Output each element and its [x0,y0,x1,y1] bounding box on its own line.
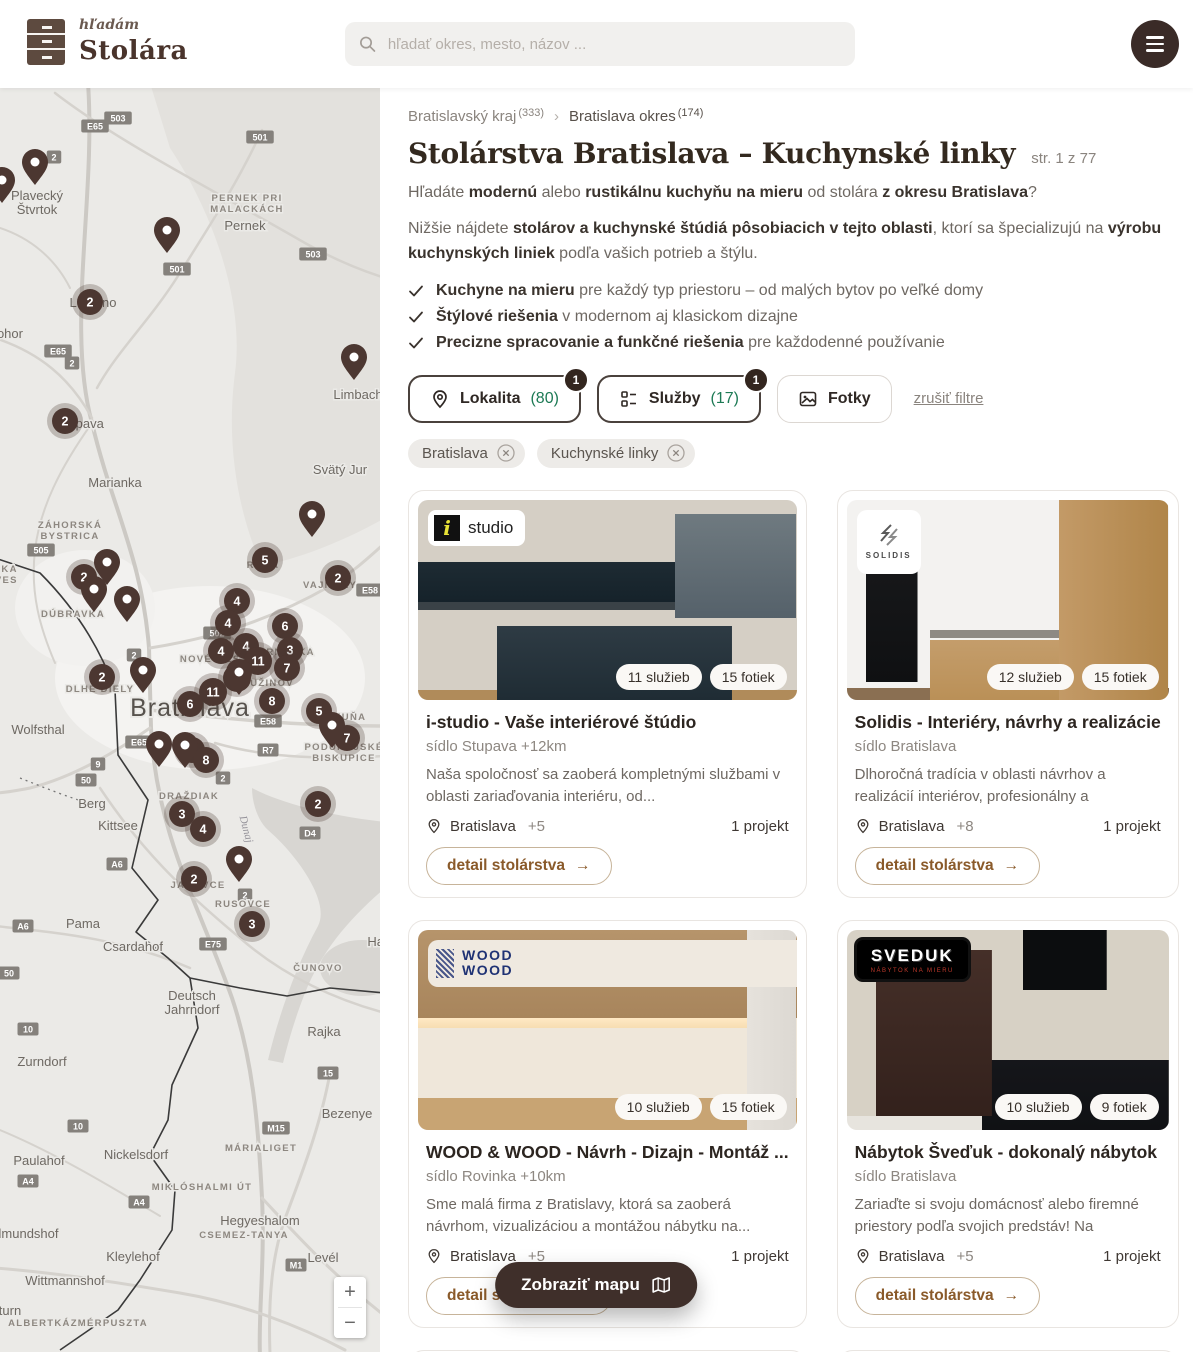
svg-text:M15: M15 [267,1124,285,1134]
svg-text:D4: D4 [304,829,316,839]
svg-text:E75: E75 [205,940,221,950]
map-label: RUSOVCE [215,899,271,910]
listing-description: Sme malá firma z Bratislavy, ktorá sa za… [426,1194,789,1238]
map-label: Hegyeshalom [220,1213,300,1228]
show-map-button[interactable]: Zobraziť mapu [495,1262,697,1308]
svg-text:A4: A4 [133,1198,145,1208]
photo-icon [798,389,818,409]
breadcrumb-region[interactable]: Bratislavský kraj(333) [408,108,544,125]
map-zoom-in-button[interactable]: + [334,1277,366,1307]
map-label: PERNEK PRIMALACKÁCH [210,193,283,215]
listing-title[interactable]: Solidis - Interiéry, návrhy a realizácie [855,712,1161,733]
svg-text:11: 11 [206,686,219,700]
svg-text:E65: E65 [87,122,103,132]
map-label: Berg [78,796,105,811]
listing-location-row: Bratislava +5 1 projekt [426,818,789,835]
location-pin-icon [426,1248,442,1264]
company-logo: SVEDUKNÁBYTOK NA MIERU [857,940,968,979]
map-label: Zurndorf [17,1054,67,1069]
search-bar[interactable] [345,22,855,66]
svg-text:6: 6 [187,698,194,712]
location-pin-icon [855,1248,871,1264]
photos-count-badge: 9 fotiek [1090,1094,1159,1120]
svg-text:505: 505 [33,546,48,556]
svg-text:2: 2 [99,671,106,685]
map-label: ALBERTKÁZMÉRPUSZTA [8,1318,148,1329]
map-icon [651,1275,671,1295]
map-label: Paulahof [13,1153,65,1168]
check-icon [408,309,424,325]
filter-button-sluzby[interactable]: Služby (17) 1 [597,375,761,423]
svg-text:E65: E65 [131,738,147,748]
svg-text:4: 4 [218,645,225,659]
listing-city: Bratislava [450,818,516,835]
map-label: DEVÍNSKANOVÁ VES [0,564,18,586]
arrow-right-icon: → [1004,1287,1020,1305]
map-label: Bezenye [322,1106,373,1121]
top-header: hľadám Stolára [0,0,1193,88]
listing-description: Dlhoročná tradícia v oblasti návrhov a r… [855,764,1161,808]
map-label: Pama [66,916,101,931]
checklist-icon [619,389,639,409]
listing-projects: 1 projekt [1103,818,1161,835]
filter-toolbar: Lokalita (80) 1 Služby (17) 1 Fotky zruš… [408,375,1171,423]
svg-text:4: 4 [225,617,232,631]
map-label: Zohor [0,326,24,341]
svg-text:2: 2 [220,774,225,784]
breadcrumb-district[interactable]: Bratislava okres(174) [569,108,703,125]
photos-count-badge: 15 fotiek [710,1094,787,1120]
checklist-item: Kuchyne na mieru pre každý typ priestoru… [408,279,1171,303]
svg-text:4: 4 [200,823,207,837]
svg-text:A6: A6 [17,922,29,932]
photo-badges: 12 služieb 15 fotiek [987,664,1159,690]
map-label: Pernek [224,218,266,233]
listing-city-more: +8 [957,818,974,835]
logo-name: Stolára [79,36,188,66]
photo-badges: 10 služieb 9 fotiek [995,1094,1159,1120]
svg-text:2: 2 [87,296,94,310]
page-indicator: str. 1 z 77 [1031,150,1096,167]
chip-kuchynske-linky[interactable]: Kuchynské linky [537,439,696,468]
svg-text:2: 2 [131,651,136,661]
photo-badges: 10 služieb 15 fotiek [615,1094,787,1120]
close-icon[interactable] [497,444,515,462]
listing-projects: 1 projekt [731,818,789,835]
listing-city: Bratislava [879,818,945,835]
filter-active-badge: 1 [743,367,769,393]
listing-projects: 1 projekt [1103,1248,1161,1265]
listing-seat: sídlo Bratislava [855,1168,1161,1185]
listing-card[interactable]: SOLIDIS 12 služieb 15 fotiek Solidis - I… [837,490,1179,898]
check-icon [408,335,424,351]
benefits-checklist: Kuchyne na mieru pre každý typ priestoru… [408,279,1171,355]
map-label: ZÁHORSKÁBYSTRICA [38,520,102,542]
svg-text:15: 15 [323,1069,333,1079]
listing-city: Bratislava [879,1248,945,1265]
photos-count-badge: 15 fotiek [710,664,787,690]
map-label: MIKLÓSHALMI ÚT [152,1181,253,1193]
arrow-right-icon: → [575,857,591,875]
location-pin-icon [855,818,871,834]
map-zoom-control: + − [334,1277,366,1338]
map-label: CSEMEZ-TANYA [199,1230,289,1241]
services-count-badge: 11 služieb [616,664,702,690]
svg-text:3: 3 [179,808,186,822]
listing-title[interactable]: WOOD & WOOD - Návrh - Dizajn - Montáž ..… [426,1142,789,1163]
listing-card[interactable]: SVEDUKNÁBYTOK NA MIERU 10 služieb 9 foti… [837,920,1179,1328]
page-title: Stolárstva Bratislava – Kuchynské linky [408,137,1015,170]
filter-count: (17) [710,390,738,408]
listing-location-row: Bratislava +5 1 projekt [855,1248,1161,1265]
listing-city-more: +5 [528,818,545,835]
search-input[interactable] [386,35,841,54]
svg-text:3: 3 [249,918,256,932]
arrow-right-icon: → [1004,857,1020,875]
checklist-item: Precizne spracovanie a funkčné riešenia … [408,331,1171,355]
checklist-item: Štýlové riešenia v modernom aj klasickom… [408,305,1171,329]
map-label: Limbach [333,387,380,402]
filter-active-badge: 1 [563,367,589,393]
map-label: Rajka [307,1024,341,1039]
listing-location-row: Bratislava +8 1 projekt [855,818,1161,835]
svg-text:A6: A6 [111,860,123,870]
svg-text:E65: E65 [50,347,66,357]
svg-text:50: 50 [81,776,91,786]
listing-description: Zariaďte si svoju domácnosť alebo firemn… [855,1194,1161,1238]
map-label: Nickelsdorf [104,1147,169,1162]
filter-button-lokalita[interactable]: Lokalita (80) 1 [408,375,581,423]
active-filter-chips: Bratislava Kuchynské linky [408,439,1171,468]
map-label: Kleylehof [106,1249,160,1264]
map-label: Marianka [88,475,142,490]
svg-text:501: 501 [252,133,267,143]
services-count-badge: 10 služieb [615,1094,702,1120]
company-logo: SOLIDIS [857,510,921,574]
detail-button[interactable]: detail stolárstva→ [855,847,1041,885]
svg-text:10: 10 [73,1122,83,1132]
menu-button[interactable] [1131,20,1179,68]
svg-text:2: 2 [191,873,198,887]
svg-text:M1: M1 [290,1261,303,1271]
filter-button-fotky[interactable]: Fotky [777,375,892,423]
map-label: turn [0,1303,21,1318]
company-logo: WOODWOOD [428,940,797,987]
breadcrumb: Bratislavský kraj(333) › Bratislava okre… [408,108,1171,125]
listing-city: Bratislava [450,1248,516,1265]
listing-projects: 1 projekt [731,1248,789,1265]
map-label: Csardahof [103,939,163,954]
svg-text:6: 6 [282,620,289,634]
svg-text:503: 503 [110,114,125,124]
listing-seat: sídlo Rovinka +10km [426,1168,789,1185]
logo-tagline: hľadám [79,17,188,33]
listing-photo[interactable]: WOODWOOD 10 služieb 15 fotiek [418,930,797,1130]
results-grid: istudio 11 služieb 15 fotiek i-studio - … [408,490,1171,1352]
services-count-badge: 10 služieb [995,1094,1082,1120]
listing-title[interactable]: i-studio - Vaše interiérové štúdio [426,712,789,733]
close-icon[interactable] [667,444,685,462]
listing-card[interactable]: istudio 11 služieb 15 fotiek i-studio - … [408,490,807,898]
services-count-badge: 12 služieb [987,664,1074,690]
svg-text:503: 503 [305,250,320,260]
listing-description: Naša spoločnosť sa zaoberá kompletnými s… [426,764,789,808]
check-icon [408,283,424,299]
map-label: Svätý Jur [313,462,368,477]
svg-text:5: 5 [316,705,323,719]
map-panel: E655035012503501E652505E585022E58E65R795… [0,88,380,1352]
svg-text:A4: A4 [22,1177,34,1187]
listing-photo[interactable]: SOLIDIS 12 služieb 15 fotiek [847,500,1169,700]
map-label: MÁRIALIGET [225,1143,297,1154]
svg-text:2: 2 [335,572,342,586]
location-pin-icon [426,818,442,834]
chip-bratislava[interactable]: Bratislava [408,439,525,468]
reset-filters-link[interactable]: zrušiť filtre [914,390,984,407]
map-zoom-out-button[interactable]: − [334,1308,366,1338]
map-label: Hamuliakovo [367,934,380,949]
detail-button[interactable]: detail stolárstva→ [855,1277,1041,1315]
svg-text:7: 7 [344,732,351,746]
map-label: DeutschJahrndorf [165,988,220,1017]
svg-text:R7: R7 [262,746,274,756]
intro-question: Hľadáte modernú alebo rustikálnu kuchyňu… [408,180,1171,206]
map-canvas[interactable]: E655035012503501E652505E585022E58E65R795… [0,88,380,1352]
listing-photo[interactable]: SVEDUKNÁBYTOK NA MIERU 10 služieb 9 foti… [847,930,1169,1130]
company-logo: istudio [428,510,525,546]
map-label: Wittmannshof [25,1273,105,1288]
svg-text:11: 11 [251,655,264,669]
svg-text:8: 8 [203,754,210,768]
map-label: Levél [307,1250,338,1265]
photo-badges: 11 služieb 15 fotiek [616,664,787,690]
listing-seat: sídlo Stupava +12km [426,738,789,755]
svg-text:2: 2 [51,153,56,163]
listing-title[interactable]: Nábytok Šveďuk - dokonalý nábytok [855,1142,1161,1163]
chevron-right-icon: › [554,108,559,125]
site-logo[interactable]: hľadám Stolára [25,17,188,66]
photos-count-badge: 15 fotiek [1082,664,1159,690]
search-icon [359,35,376,53]
map-label: Kittsee [98,818,138,833]
svg-text:2: 2 [62,415,69,429]
cabinet-logo-icon [25,18,67,66]
hamburger-icon [1146,36,1164,38]
location-pin-icon [430,389,450,409]
svg-text:2: 2 [315,798,322,812]
map-label: PlaveckýŠtvrtok [11,188,64,217]
listing-city-more: +5 [957,1248,974,1265]
svg-text:9: 9 [95,760,100,770]
svg-text:5: 5 [262,554,269,568]
map-label: Edmundshof [0,1226,59,1241]
results-panel: Bratislavský kraj(333) › Bratislava okre… [380,88,1193,1352]
svg-text:E58: E58 [362,586,378,596]
svg-text:2: 2 [69,359,74,369]
svg-text:501: 501 [169,265,184,275]
svg-text:10: 10 [23,1025,33,1035]
svg-text:50: 50 [4,969,14,979]
intro-description: Nižšie nájdete stolárov a kuchynské štúd… [408,216,1171,267]
svg-text:7: 7 [284,662,291,676]
detail-button[interactable]: detail stolárstva→ [426,847,612,885]
map-label: ČUNOVO [293,962,343,974]
listing-photo[interactable]: istudio 11 služieb 15 fotiek [418,500,797,700]
svg-text:8: 8 [269,695,276,709]
map-label: Wolfsthal [11,722,64,737]
filter-count: (80) [530,390,558,408]
listing-seat: sídlo Bratislava [855,738,1161,755]
